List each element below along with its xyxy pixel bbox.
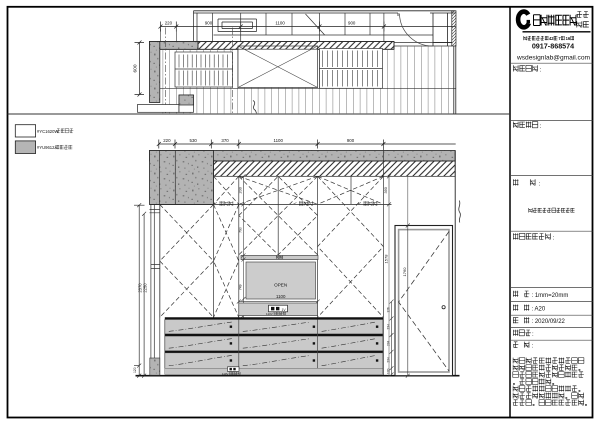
svg-text:120: 120 [133,367,137,373]
svg-text:370: 370 [221,138,229,143]
svg-text:790: 790 [238,227,242,233]
svg-text:390: 390 [384,187,388,193]
svg-text:234: 234 [387,324,391,330]
svg-text:1578: 1578 [383,254,388,264]
svg-text:234: 234 [387,341,391,347]
svg-text:2250: 2250 [143,283,148,293]
svg-text:234: 234 [387,357,391,363]
svg-text:1100: 1100 [273,138,283,143]
svg-text::: : [553,235,555,242]
svg-text:1V: 1V [282,308,287,312]
svg-text:120: 120 [387,368,391,374]
svg-text:900: 900 [205,21,213,26]
svg-text:1100: 1100 [276,294,286,299]
svg-text:110V: 110V [266,312,273,316]
svg-text::: : [539,181,541,188]
svg-text:1760: 1760 [402,267,407,277]
svg-text:600: 600 [133,64,139,72]
svg-text:900: 900 [347,138,355,143]
svg-text:OPEN: OPEN [274,283,287,288]
svg-text:1100: 1100 [275,21,285,26]
svg-text::: : [540,67,542,74]
svg-text:900: 900 [348,21,356,26]
svg-text:: 2020/09/22: : 2020/09/22 [532,319,566,325]
svg-text:200: 200 [239,187,243,193]
svg-text:42: 42 [549,36,554,41]
svg-text:: A20: : A20 [532,307,546,313]
svg-text:126: 126 [387,307,391,313]
svg-text:#YC1620W: #YC1620W [37,129,58,134]
svg-text:16: 16 [566,36,571,41]
svg-text::: : [540,123,542,130]
svg-text:#YU9612A: #YU9612A [37,145,57,150]
svg-text:220: 220 [165,21,173,26]
svg-text:0917-868574: 0917-868574 [532,42,574,51]
svg-text:530: 530 [190,138,198,143]
svg-text:749: 749 [238,284,242,290]
svg-text:: 1mm=20mm: : 1mm=20mm [532,293,569,299]
svg-text:wsdesignlab@gmail.com: wsdesignlab@gmail.com [516,54,591,61]
svg-text:220: 220 [163,138,171,143]
